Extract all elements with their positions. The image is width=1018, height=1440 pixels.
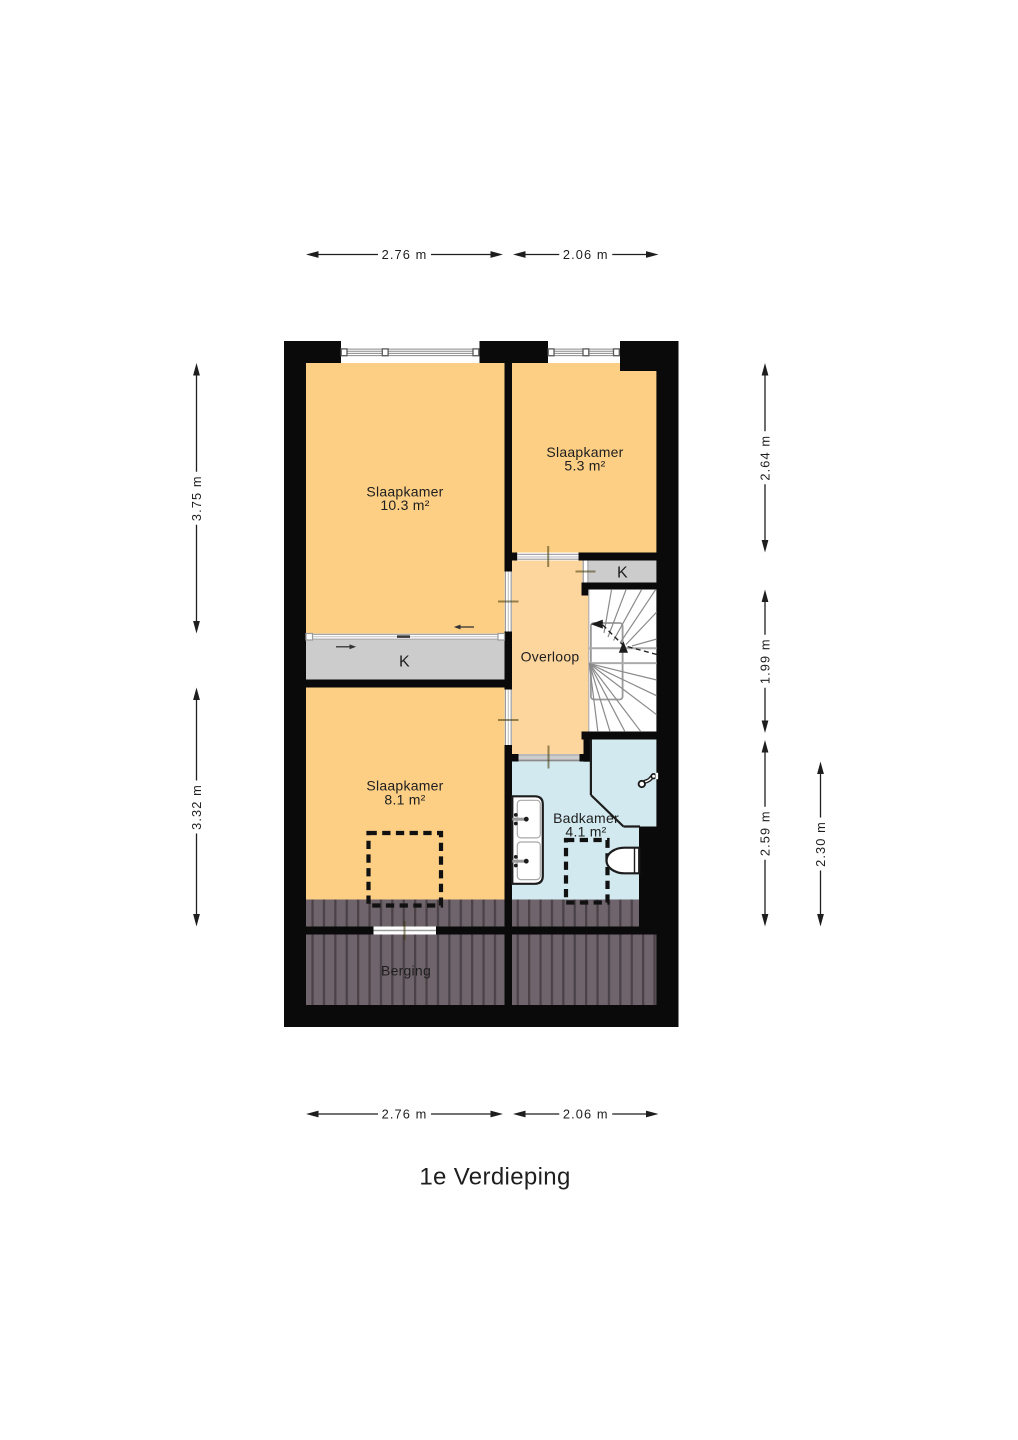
svg-text:2.76 m: 2.76 m [382,1107,428,1122]
svg-text:Overloop: Overloop [521,649,580,665]
svg-text:2.59 m: 2.59 m [758,810,773,856]
svg-text:K: K [617,565,628,582]
svg-text:2.76 m: 2.76 m [382,247,428,262]
svg-text:2.64 m: 2.64 m [758,435,773,481]
svg-text:1e Verdieping: 1e Verdieping [419,1164,570,1191]
svg-text:2.06 m: 2.06 m [563,247,609,262]
svg-text:5.3 m²: 5.3 m² [564,457,605,473]
svg-text:K: K [399,654,410,671]
svg-text:3.32 m: 3.32 m [189,784,204,830]
svg-text:1.99 m: 1.99 m [758,638,773,684]
svg-text:8.1 m²: 8.1 m² [384,791,425,807]
svg-text:2.30 m: 2.30 m [813,821,828,867]
svg-text:Berging: Berging [381,963,431,979]
svg-text:4.1 m²: 4.1 m² [565,824,606,840]
svg-text:3.75 m: 3.75 m [189,475,204,521]
svg-text:2.06 m: 2.06 m [563,1107,609,1122]
svg-text:10.3 m²: 10.3 m² [380,497,429,513]
